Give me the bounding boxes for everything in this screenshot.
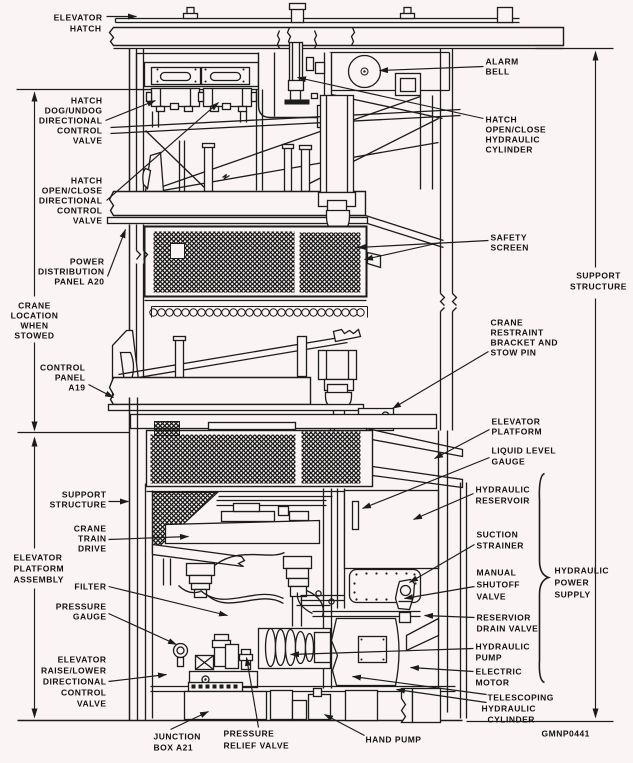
svg-text:STRUCTURE: STRUCTURE <box>50 500 107 510</box>
svg-text:MOTOR: MOTOR <box>476 678 510 688</box>
svg-text:DISTRIBUTION: DISTRIBUTION <box>38 267 104 277</box>
svg-text:BRACKET AND: BRACKET AND <box>491 338 559 348</box>
svg-text:DRIVE: DRIVE <box>78 544 106 554</box>
svg-text:RESERVIOR: RESERVIOR <box>477 613 531 623</box>
svg-text:HYDRAULIC: HYDRAULIC <box>482 704 537 714</box>
svg-text:DIRECTIONAL: DIRECTIONAL <box>39 116 103 126</box>
svg-text:ASSEMBLY: ASSEMBLY <box>14 575 64 585</box>
svg-text:PLATFORM: PLATFORM <box>14 564 65 574</box>
svg-text:SUPPORT: SUPPORT <box>62 490 107 500</box>
svg-text:MANUAL: MANUAL <box>477 568 517 578</box>
svg-text:GMNP0441: GMNP0441 <box>542 729 590 739</box>
svg-text:WHEN: WHEN <box>21 321 49 331</box>
svg-text:DIRECTIONAL: DIRECTIONAL <box>43 677 107 687</box>
svg-text:ELEVATOR: ELEVATOR <box>54 13 103 23</box>
svg-text:STOWED: STOWED <box>14 331 54 341</box>
svg-text:ELECTRIC: ELECTRIC <box>476 667 523 677</box>
svg-text:DIRECTIONAL: DIRECTIONAL <box>39 196 103 206</box>
svg-text:CYLINDER: CYLINDER <box>486 145 533 155</box>
svg-text:HATCH: HATCH <box>486 115 518 125</box>
svg-text:VALVE: VALVE <box>477 592 507 602</box>
svg-text:VALVE: VALVE <box>73 136 103 146</box>
svg-text:HYDRAULIC: HYDRAULIC <box>476 485 531 495</box>
svg-text:PUMP: PUMP <box>476 653 503 663</box>
svg-text:HAND PUMP: HAND PUMP <box>366 735 422 745</box>
svg-text:PANEL: PANEL <box>55 373 86 383</box>
svg-text:HATCH: HATCH <box>71 96 103 106</box>
svg-text:PRESSURE: PRESSURE <box>56 602 107 612</box>
svg-text:RAISE/LOWER: RAISE/LOWER <box>41 666 106 676</box>
svg-text:HYDRAULIC: HYDRAULIC <box>555 566 610 576</box>
svg-text:ELEVATOR: ELEVATOR <box>492 417 541 427</box>
svg-text:TELESCOPING: TELESCOPING <box>488 693 554 703</box>
svg-text:A19: A19 <box>68 383 85 393</box>
svg-text:PLATFORM: PLATFORM <box>492 427 543 437</box>
svg-text:ALARM: ALARM <box>486 57 519 67</box>
svg-text:TRAIN: TRAIN <box>78 534 106 544</box>
svg-text:FILTER: FILTER <box>74 582 106 592</box>
svg-text:PANEL A20: PANEL A20 <box>54 277 104 287</box>
svg-text:OPEN/CLOSE: OPEN/CLOSE <box>486 125 547 135</box>
svg-text:OPEN/CLOSE: OPEN/CLOSE <box>42 186 103 196</box>
svg-text:CRANE: CRANE <box>18 301 51 311</box>
svg-text:LOCATION: LOCATION <box>11 311 59 321</box>
svg-text:ELEVATOR: ELEVATOR <box>14 553 63 563</box>
svg-text:BELL: BELL <box>486 67 510 77</box>
svg-text:HATCH: HATCH <box>70 24 102 34</box>
svg-text:ELEVATOR: ELEVATOR <box>58 655 107 665</box>
svg-text:VALVE: VALVE <box>77 699 107 709</box>
svg-text:SAFETY: SAFETY <box>491 233 528 243</box>
svg-text:HYDRAULIC: HYDRAULIC <box>486 135 541 145</box>
svg-text:CRANE: CRANE <box>491 318 524 328</box>
svg-text:BOX A21: BOX A21 <box>154 743 194 753</box>
svg-text:SCREEN: SCREEN <box>491 243 529 253</box>
svg-text:LIQUID LEVEL: LIQUID LEVEL <box>492 446 557 456</box>
svg-text:STOW PIN: STOW PIN <box>491 348 537 358</box>
svg-text:PRESSURE: PRESSURE <box>224 729 275 739</box>
svg-text:RELIEF VALVE: RELIEF VALVE <box>224 741 290 751</box>
svg-text:POWER: POWER <box>70 257 105 267</box>
svg-text:RESERVOIR: RESERVOIR <box>476 496 530 506</box>
svg-text:HATCH: HATCH <box>71 176 103 186</box>
svg-text:CONTROL: CONTROL <box>61 688 107 698</box>
svg-text:SHUTOFF: SHUTOFF <box>477 580 520 590</box>
svg-text:POWER: POWER <box>555 578 590 588</box>
svg-text:CONTROL: CONTROL <box>57 126 103 136</box>
svg-text:SUCTION: SUCTION <box>477 530 519 540</box>
svg-text:CONTROL: CONTROL <box>57 206 103 216</box>
svg-text:CRANE: CRANE <box>74 524 107 534</box>
svg-text:STRUCTURE: STRUCTURE <box>570 282 627 292</box>
svg-text:GAUGE: GAUGE <box>492 457 526 467</box>
svg-text:SUPPORT: SUPPORT <box>576 271 621 281</box>
svg-text:JUNCTION: JUNCTION <box>154 732 201 742</box>
svg-text:DRAIN VALVE: DRAIN VALVE <box>477 624 539 634</box>
svg-text:CYLINDER: CYLINDER <box>488 715 535 725</box>
svg-text:DOG/UNDOG: DOG/UNDOG <box>45 106 103 116</box>
svg-text:HYDRAULIC: HYDRAULIC <box>476 642 531 652</box>
svg-text:RESTRAINT: RESTRAINT <box>491 328 544 338</box>
svg-text:GAUGE: GAUGE <box>73 612 107 622</box>
svg-text:CONTROL: CONTROL <box>40 363 86 373</box>
svg-text:STRAINER: STRAINER <box>477 541 524 551</box>
svg-text:VALVE: VALVE <box>73 216 103 226</box>
svg-text:SUPPLY: SUPPLY <box>555 590 591 600</box>
